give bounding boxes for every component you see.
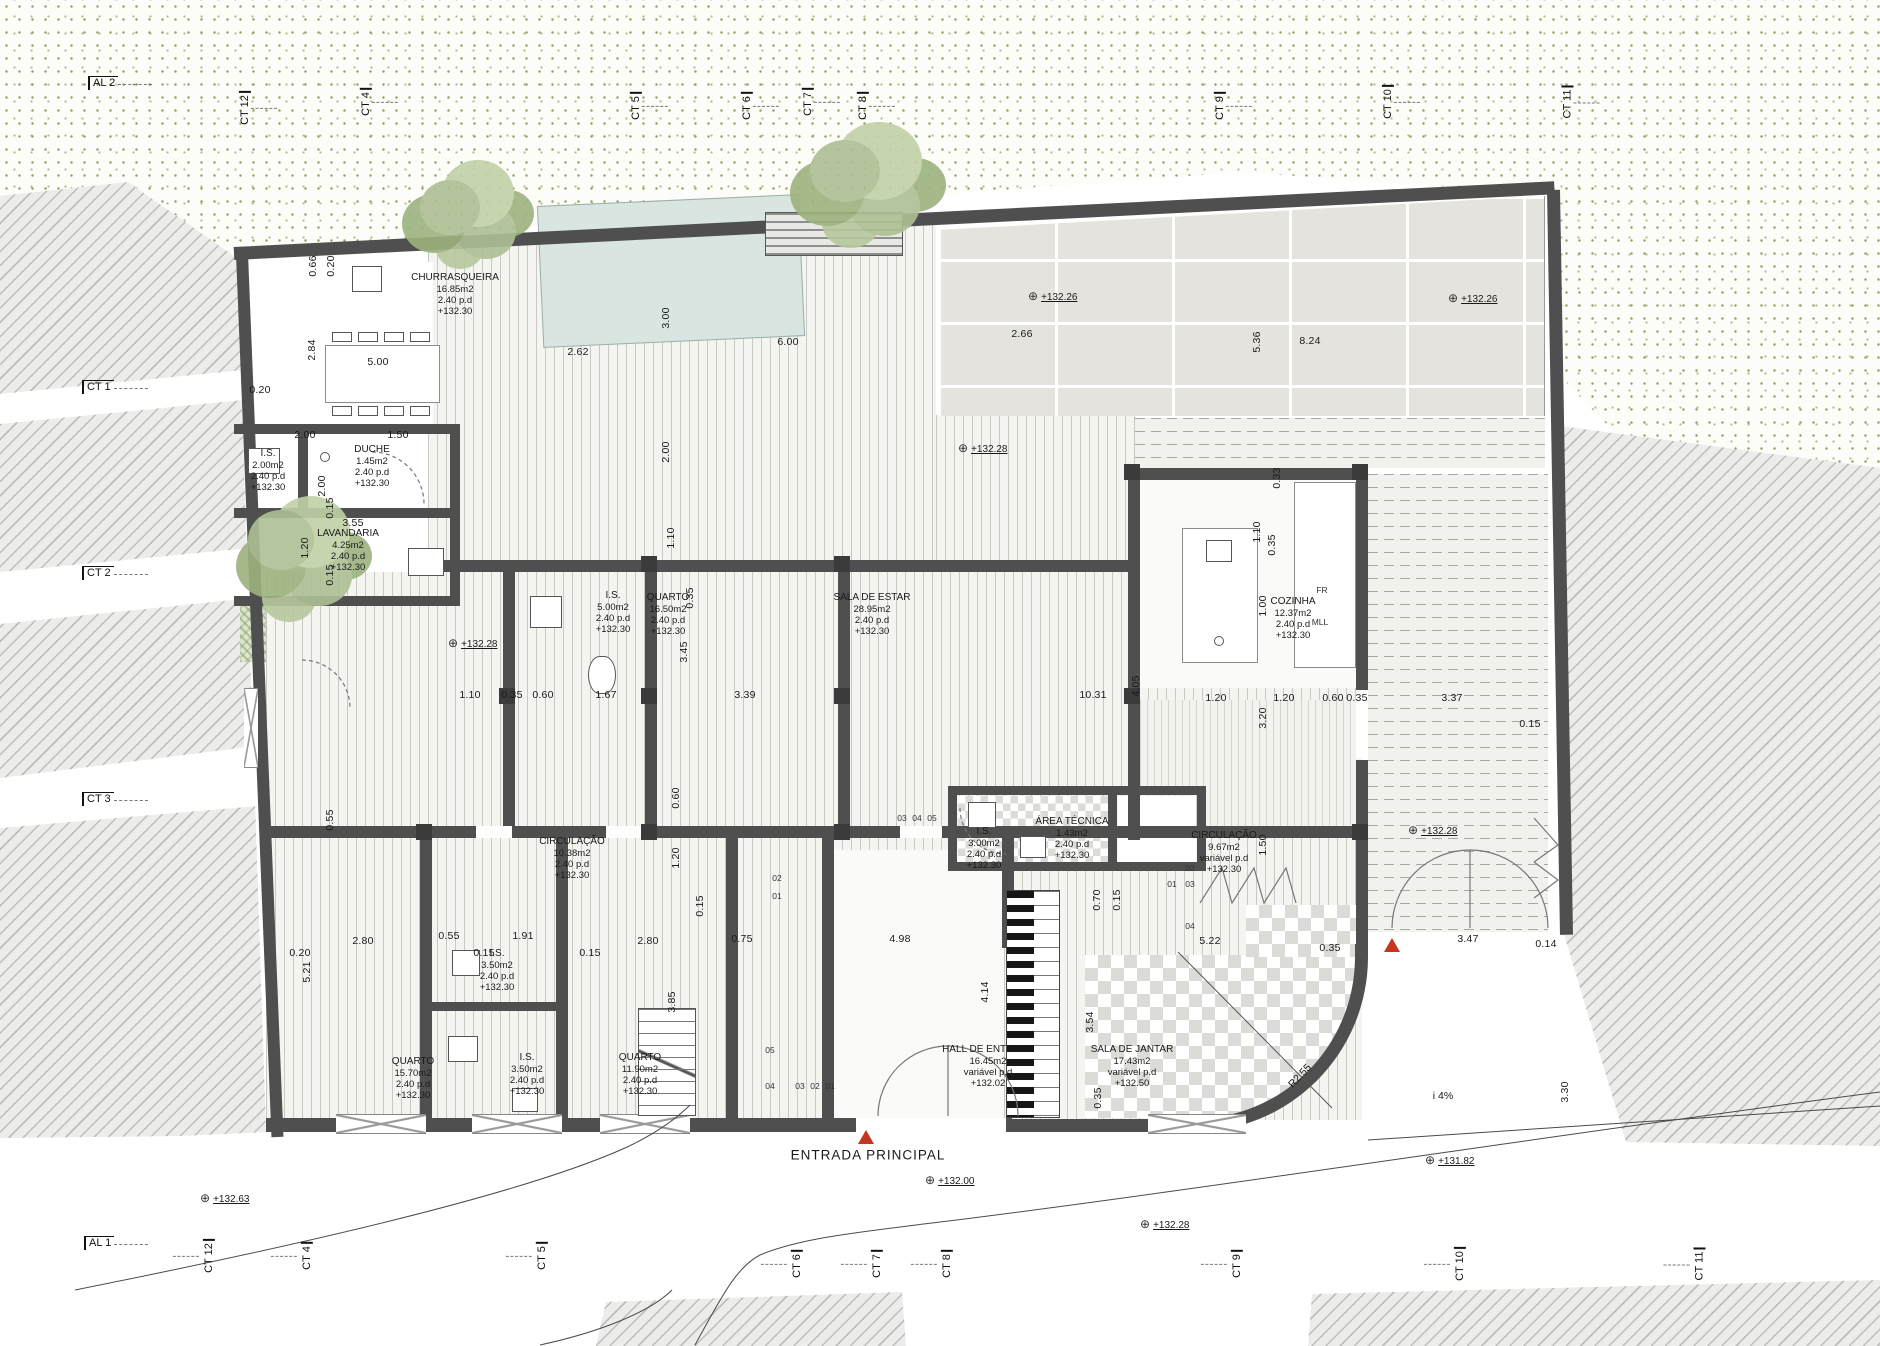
grid-marker-ct5-top: CT 5 [630,92,642,120]
grid-marker-ct9-bottom: CT 9 [1231,1250,1243,1278]
annotation-6: 01 [772,891,781,901]
dimension-16: 1.00 [1257,595,1269,616]
dimension-5: 2.62 [567,346,588,358]
grid-marker-leader [761,1264,787,1265]
room-label-7: COZINHA12.37m22.40 p.d+132.30 [1271,596,1316,641]
elevation-marker-3: ⊕+132.28 [448,636,498,650]
dimension-22: 3.55 [342,517,363,529]
floor-plan: CHURRASQUEIRA16.85m22.40 p.d+132.30I.S.2… [0,0,1880,1346]
room-label-2: DUCHE1.45m22.40 p.d+132.30 [354,444,390,489]
dimension-18: 1.50 [1257,834,1269,855]
grid-marker-leader [1394,102,1420,103]
grid-marker-leader [841,1264,867,1265]
grid-marker-ct5-bottom: CT 5 [536,1242,548,1270]
dimension-57: 0.14 [1535,938,1556,950]
grid-marker-leader [372,102,398,103]
dimension-21: 2.00 [316,475,328,496]
annotation-0: ENTRADA PRINCIPAL [791,1148,946,1163]
dimension-36: 0.60 [1322,692,1343,704]
dimension-6: 6.00 [777,336,798,348]
room-label-6: SALA DE ESTAR28.95m22.40 p.d+132.30 [833,592,910,637]
room-label-12: QUARTO15.70m22.40 p.d+132.30 [392,1056,434,1101]
dimension-34: 1.20 [1205,692,1226,704]
grid-marker-ct10-top: CT 10 [1382,85,1394,119]
grid-marker-ct10-bottom: CT 10 [1454,1247,1466,1281]
grid-marker-ct4-bottom: CT 4 [301,1242,313,1270]
elevation-marker-icon: ⊕ [1425,1153,1435,1167]
dimension-52: 0.75 [731,933,752,945]
elevation-marker-6: ⊕+132.00 [925,1173,975,1187]
dimension-1: 0.66 [307,255,319,276]
grid-marker-ct7-bottom: CT 7 [871,1250,883,1278]
dimension-35: 1.20 [1273,692,1294,704]
room-label-17: SALA DE JANTAR17.43m2variável p.d+132.50 [1091,1044,1174,1089]
dimension-3: 2.84 [306,339,318,360]
elevation-marker-icon: ⊕ [200,1191,210,1205]
grid-marker-leader [271,1256,297,1257]
dimension-41: 0.60 [670,787,682,808]
annotation-17: 04 [912,813,921,823]
dimension-19: 2.00 [294,429,315,441]
dimension-7: 2.66 [1011,328,1032,340]
annotation-13: 03 [1185,879,1194,889]
annotation-14: 01 [1167,879,1176,889]
room-label-1: I.S.2.00m22.40 p.d+132.30 [251,448,286,493]
dimension-0: 0.20 [249,384,270,396]
grid-marker-ct12-bottom: CT 12 [203,1239,215,1273]
dimension-30: 3.45 [678,641,690,662]
annotation-7: 05 [765,1045,774,1055]
dimension-31: 3.39 [734,689,755,701]
annotation-18: 05 [927,813,936,823]
annotation-3: FR [1316,585,1327,595]
dimension-4: 5.00 [367,356,388,368]
elevation-marker-5: ⊕+132.63 [200,1191,250,1205]
dimension-45: 0.20 [289,947,310,959]
annotation-2: R2.55 [1286,1062,1314,1091]
elevation-marker-4: ⊕+132.28 [1408,823,1458,837]
grid-marker-leader [1573,102,1599,103]
room-label-11: CIRCULAÇÃO9.67m2variável p.d+132.30 [1191,830,1257,875]
dimension-39: 0.15 [1519,718,1540,730]
grid-marker-leader [118,84,152,85]
room-label-8: CIRCULAÇÃO10.38m22.40 p.d+132.30 [539,836,605,881]
grid-marker-leader [642,106,668,107]
dimension-46: 2.80 [352,935,373,947]
dimension-48: 1.91 [512,930,533,942]
dimension-33: 4.05 [1130,675,1142,696]
elevation-marker-icon: ⊕ [925,1173,935,1187]
dimension-8: 8.24 [1299,335,1320,347]
grid-marker-ct2-left: CT 2 [82,566,114,580]
dimension-58: 5.21 [301,961,313,982]
dimension-44: 0.55 [324,809,336,830]
dimension-55: 0.35 [1319,942,1340,954]
elevation-marker-icon: ⊕ [1448,291,1458,305]
annotation-15: 04 [1185,921,1194,931]
room-label-16: HALL DE ENTRADA16.45m2variável p.d+132.0… [942,1044,1034,1089]
room-label-9: I.S.3.00m22.40 p.d+132.30 [967,826,1002,871]
dimension-42: 1.20 [670,847,682,868]
dimension-29: 1.67 [595,689,616,701]
grid-marker-ct6-bottom: CT 6 [791,1250,803,1278]
dimension-14: 1.10 [1251,521,1263,542]
grid-marker-leader [1424,1264,1450,1265]
grid-marker-ct11-bottom: CT 11 [1693,1248,1705,1281]
dimension-38: 3.37 [1441,692,1462,704]
grid-marker-leader [869,106,895,107]
grid-marker-leader [114,1244,148,1245]
grid-marker-ct4-top: CT 4 [360,88,372,116]
dimension-51: 2.80 [637,935,658,947]
elevation-marker-2: ⊕+132.28 [958,441,1008,455]
elevation-marker-0: ⊕+132.26 [1028,289,1078,303]
grid-marker-al1-left: AL 1 [84,1236,114,1250]
dimension-24: 1.20 [299,537,311,558]
elevation-marker-icon: ⊕ [448,636,458,650]
grid-marker-leader [814,102,840,103]
elevation-marker-icon: ⊕ [1408,823,1418,837]
dimension-54: 5.22 [1199,935,1220,947]
dimension-56: 3.47 [1457,933,1478,945]
dimension-20: 1.50 [387,429,408,441]
annotation-4: MLL [1312,617,1329,627]
grid-marker-ct12-top: CT 12 [239,91,251,125]
elevation-marker-icon: ⊕ [1028,289,1038,303]
annotation-16: 03 [897,813,906,823]
grid-marker-leader [114,800,148,801]
grid-marker-leader [753,106,779,107]
annotation-10: 02 [810,1081,819,1091]
dimension-40: 0.35 [684,587,696,608]
dimension-10: 5.36 [1251,331,1263,352]
grid-marker-ct8-top: CT 8 [857,92,869,120]
grid-marker-ct1-left: CT 1 [82,380,114,394]
room-label-10: ÁREA TÉCNICA1.43m22.40 p.d+132.30 [1035,816,1108,861]
dimension-49: 0.15 [473,947,494,959]
dimension-17: 3.20 [1257,707,1269,728]
annotation-12: 02 [1185,863,1194,873]
dimension-60: 4.14 [979,981,991,1002]
dimension-59: 3.85 [666,991,678,1012]
dimension-2: 0.20 [325,255,337,276]
grid-marker-al2-top: AL 2 [88,76,118,90]
dimension-11: 2.00 [660,441,672,462]
room-label-5: QUARTO16.50m22.40 p.d+132.30 [647,592,689,637]
elevation-marker-7: ⊕+132.28 [1140,1217,1190,1231]
dimension-15: 0.35 [1266,534,1278,555]
grid-marker-leader [251,108,277,109]
annotation-11: 01 [825,1081,834,1091]
grid-marker-leader [173,1256,199,1257]
grid-marker-leader [506,1256,532,1257]
dimension-43: 0.15 [694,895,706,916]
grid-marker-leader [1663,1264,1689,1265]
dimension-53: 4.98 [889,933,910,945]
dimension-47: 0.55 [438,930,459,942]
dimension-50: 0.15 [579,947,600,959]
grid-marker-ct8-bottom: CT 8 [941,1250,953,1278]
dimension-32: 10.31 [1079,689,1106,701]
room-label-4: I.S.5.00m22.40 p.d+132.30 [596,590,631,635]
grid-marker-ct3-left: CT 3 [82,792,114,806]
elevation-marker-icon: ⊕ [1140,1217,1150,1231]
grid-marker-leader [114,574,148,575]
dimension-27: 0.35 [501,689,522,701]
dimension-61: 3.54 [1084,1011,1096,1032]
dimension-37: 0.35 [1346,692,1367,704]
elevation-marker-icon: ⊕ [958,441,968,455]
dimension-23: 0.15 [324,497,336,518]
dimension-65: 0.15 [1111,889,1123,910]
room-label-0: CHURRASQUEIRA16.85m22.40 p.d+132.30 [411,272,499,317]
grid-marker-ct11-top: CT 11 [1561,86,1573,119]
label-layer: CHURRASQUEIRA16.85m22.40 p.d+132.30I.S.2… [0,0,1880,1346]
grid-marker-ct6-top: CT 6 [741,92,753,120]
grid-marker-leader [911,1264,937,1265]
dimension-63: 3.30 [1559,1081,1571,1102]
grid-marker-leader [1201,1264,1227,1265]
annotation-9: 03 [795,1081,804,1091]
dimension-62: 0.35 [1092,1087,1104,1108]
dimension-9: 3.00 [660,307,672,328]
grid-marker-ct9-top: CT 9 [1214,92,1226,120]
elevation-marker-8: ⊕+131.82 [1425,1153,1475,1167]
annotation-1: i 4% [1433,1090,1453,1102]
annotation-5: 02 [772,873,781,883]
room-label-15: QUARTO11.90m22.40 p.d+132.30 [619,1052,661,1097]
dimension-28: 0.60 [532,689,553,701]
dimension-13: 1.10 [665,527,677,548]
dimension-12: 0.33 [1271,467,1283,488]
grid-marker-leader [114,388,148,389]
elevation-marker-1: ⊕+132.26 [1448,291,1498,305]
dimension-64: 0.70 [1091,889,1103,910]
grid-marker-leader [1226,106,1252,107]
annotation-8: 04 [765,1081,774,1091]
room-label-14: I.S.3.50m22.40 p.d+132.30 [510,1052,545,1097]
dimension-26: 1.10 [459,689,480,701]
grid-marker-ct7-top: CT 7 [802,88,814,116]
dimension-25: 0.15 [324,564,336,585]
